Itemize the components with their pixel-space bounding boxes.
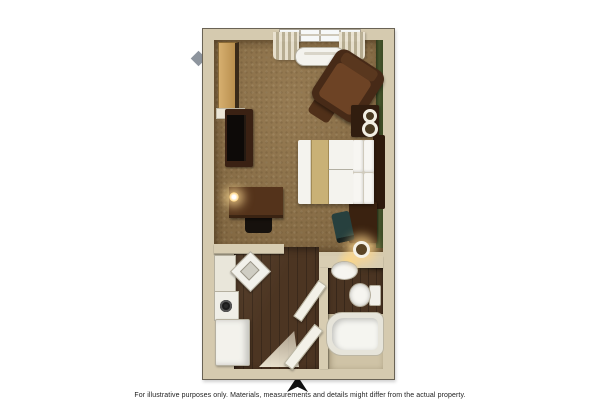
disclaimer-text: For illustrative purposes only. Material… — [0, 392, 600, 399]
ac-vent — [304, 52, 336, 55]
table-lamp — [362, 121, 378, 137]
sink-basin — [240, 261, 260, 281]
floor-plan — [202, 28, 395, 380]
closet-door — [218, 42, 239, 110]
refrigerator — [215, 319, 250, 366]
pillow — [353, 173, 363, 205]
bathtub — [326, 312, 384, 356]
bathroom-sink — [331, 261, 358, 280]
cooktop-burner — [220, 300, 232, 312]
pillow — [364, 173, 374, 205]
pillow — [353, 140, 363, 172]
desk — [229, 187, 283, 218]
tv-stand — [225, 109, 253, 167]
bed — [298, 140, 374, 204]
cooktop — [214, 291, 239, 321]
floor-plan-page: For illustrative purposes only. Material… — [0, 0, 600, 420]
desk-lamp — [229, 192, 239, 202]
toilet-bowl — [349, 283, 371, 307]
pillow — [364, 140, 374, 172]
television — [227, 115, 246, 161]
floor-lamp — [353, 241, 370, 258]
bed-runner — [311, 140, 329, 204]
bathtub-basin — [332, 318, 378, 350]
pillows — [353, 140, 374, 204]
headboard — [373, 135, 385, 209]
